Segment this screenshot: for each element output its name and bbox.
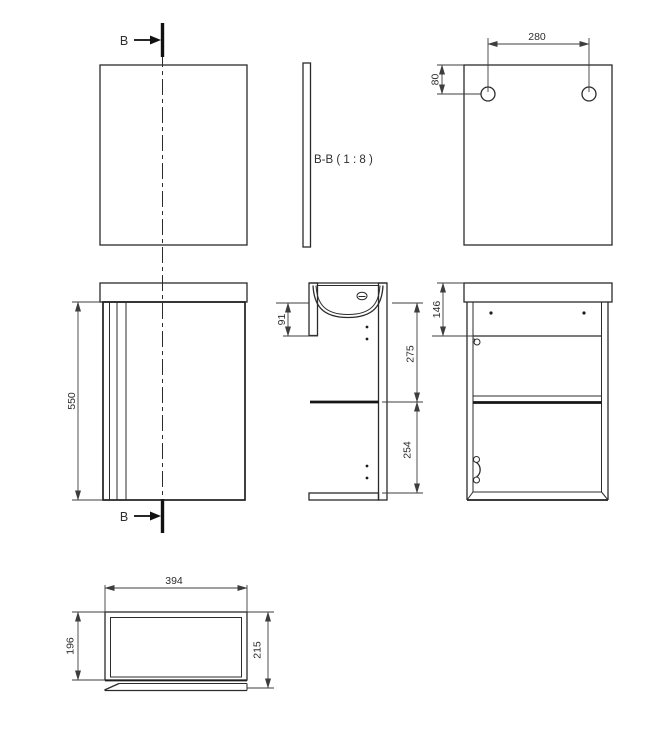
basin-bowl-inner	[316, 286, 380, 315]
dim-hole-spacing: 280	[488, 31, 589, 92]
dim-label-275: 275	[405, 345, 417, 363]
back-view-bottom-edge	[467, 492, 608, 500]
cabinet-side-section-view: 91 275 254	[276, 283, 423, 500]
section-marker-top: B	[120, 23, 163, 57]
dim-upper-compartment: 275	[382, 303, 423, 402]
screw-hole	[582, 311, 585, 314]
front-panel-view: B B	[100, 23, 247, 533]
dim-label-146: 146	[431, 301, 443, 319]
section-view-label: B-B ( 1 : 8 )	[314, 154, 373, 166]
dim-label-91: 91	[276, 314, 288, 326]
dim-label-254: 254	[402, 441, 414, 459]
section-view-b-b: B-B ( 1 : 8 )	[303, 63, 373, 247]
dim-label-394: 394	[165, 575, 183, 587]
cabinet-back-view: 146	[431, 283, 612, 500]
screw-hole	[366, 338, 369, 341]
dim-label-196: 196	[65, 637, 77, 655]
door-plan	[105, 684, 248, 691]
hinge-bracket	[474, 457, 481, 484]
screw-hole	[366, 477, 369, 480]
cabinet-front-view: 550	[66, 283, 247, 500]
dim-cabinet-height: 550	[66, 302, 103, 500]
screw-hole	[366, 326, 369, 329]
section-marker-bottom: B	[120, 499, 163, 533]
dim-label-215: 215	[252, 641, 264, 659]
dim-body-depth: 196	[65, 612, 106, 680]
dim-lower-compartment: 254	[382, 402, 423, 493]
basin-rim-back	[464, 283, 612, 302]
front-panel-outline	[100, 65, 247, 245]
cabinet-body-front	[103, 302, 245, 500]
technical-drawing-canvas: B B B-B ( 1 : 8 ) 280 80	[0, 0, 653, 734]
section-marker-label-bottom: B	[120, 510, 128, 524]
screw-hole	[366, 465, 369, 468]
section-arrow-icon	[150, 36, 161, 45]
back-panel-section	[379, 283, 388, 500]
cabinet-plan-view: 394 196 215	[65, 575, 275, 691]
basin-rim-front	[100, 283, 247, 302]
plan-inner-walls	[111, 618, 242, 678]
section-arrow-icon	[150, 512, 161, 521]
top-panel-view: 280 80	[430, 31, 613, 245]
keyhole-hanger	[474, 339, 480, 346]
dim-label-550: 550	[66, 392, 78, 410]
dim-hole-top-offset: 80	[430, 65, 482, 94]
dim-cabinet-width: 394	[105, 575, 247, 612]
top-panel-outline	[464, 65, 612, 245]
dim-label-80: 80	[430, 74, 442, 86]
basin-bowl-outer	[313, 286, 383, 318]
section-marker-label-top: B	[120, 34, 128, 48]
screw-hole	[489, 311, 492, 314]
dim-overall-depth: 215	[247, 612, 274, 688]
bottom-panel-section	[309, 493, 379, 500]
plan-outline	[105, 612, 247, 680]
door-open-corner	[105, 684, 120, 691]
dim-label-280: 280	[528, 31, 546, 43]
dim-basin-front-depth: 91	[276, 303, 318, 336]
cabinet-technical-drawing: B B B-B ( 1 : 8 ) 280 80	[0, 0, 653, 734]
section-strip	[303, 63, 311, 247]
